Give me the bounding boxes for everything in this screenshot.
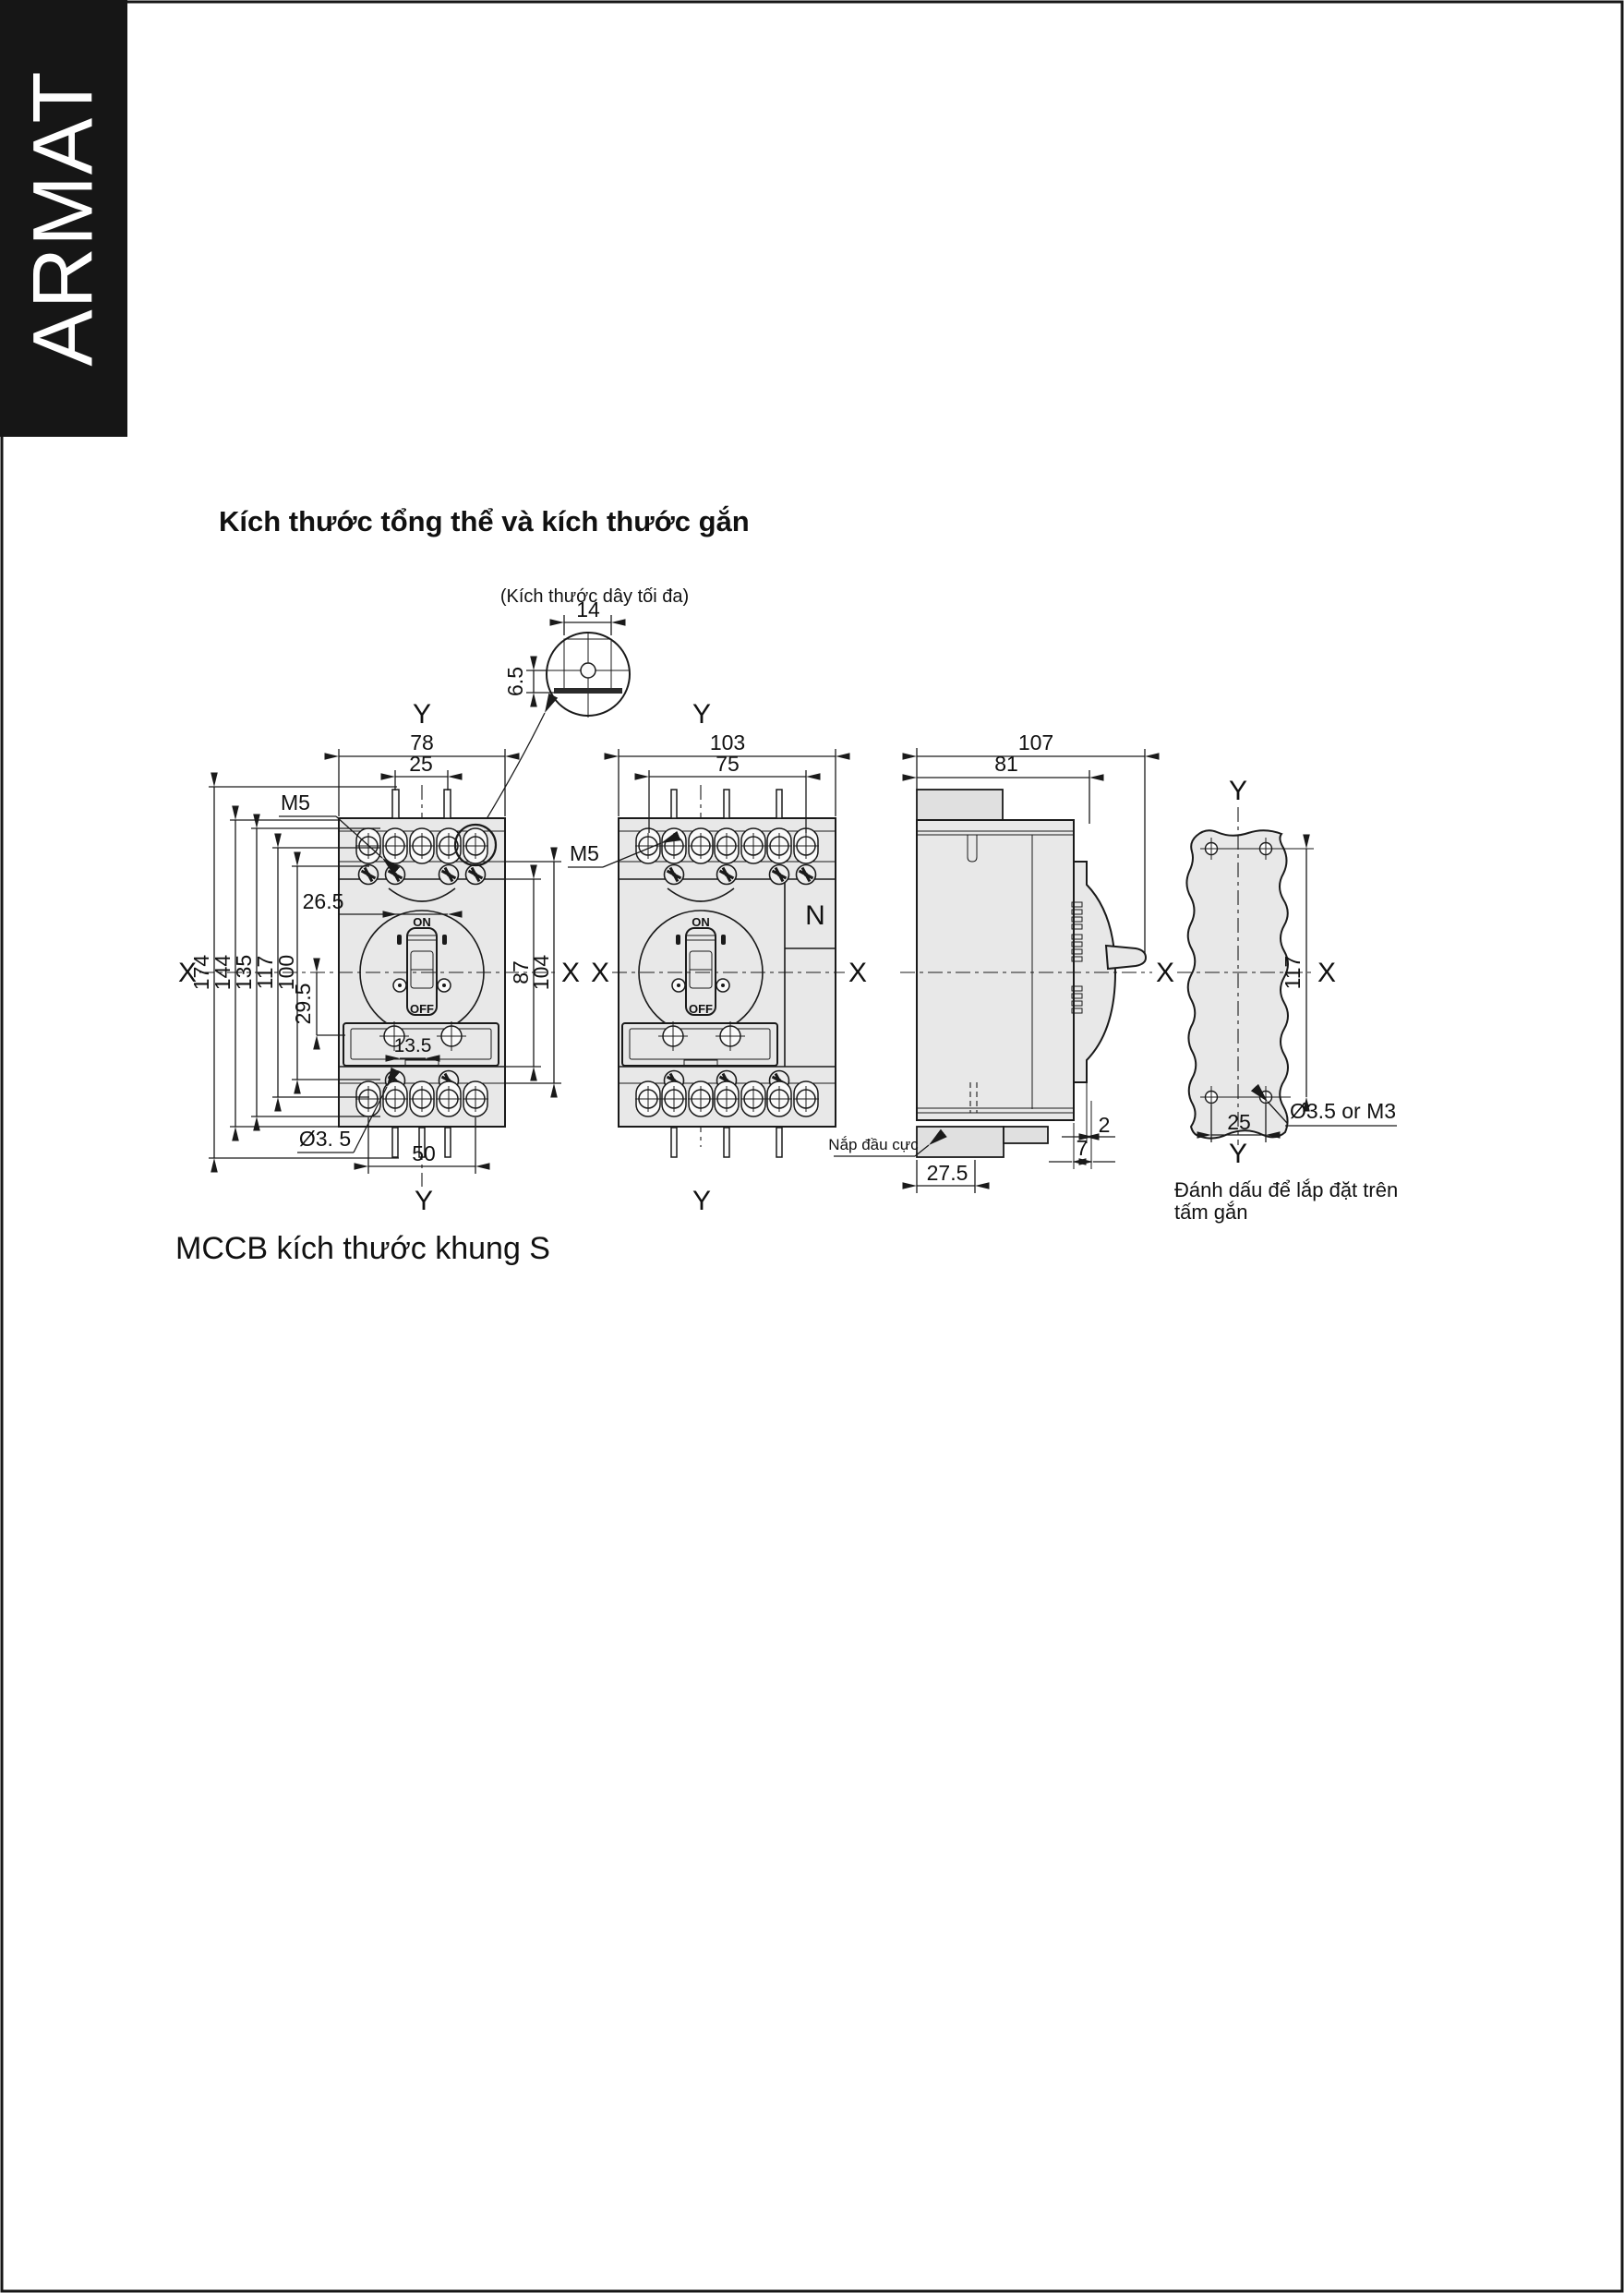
- dim-label-27-5: 27.5: [927, 1161, 968, 1185]
- axis-label-x: X: [1317, 958, 1336, 988]
- page-border: [2, 2, 1622, 2291]
- toggle-handle-side: [1106, 946, 1146, 969]
- plate-caption-line1: Đánh dấu để lắp đặt trên: [1174, 1178, 1398, 1201]
- figure-caption: MCCB kích thước khung S: [175, 1231, 550, 1266]
- dim-label-117-plate: 117: [1281, 956, 1305, 990]
- brand-banner: ARMAT: [0, 0, 127, 437]
- axis-label-y: Y: [692, 1186, 711, 1216]
- mounting-plate-view: Y Y X X 117 25 Ø3.5 or M3 Đánh dấu để lắ…: [1156, 776, 1398, 1224]
- axis-label-x: X: [848, 958, 867, 988]
- dim-label-25-plate: 25: [1227, 1110, 1251, 1134]
- dim-label-107: 107: [1018, 730, 1053, 754]
- thread-label-m5: M5: [281, 790, 310, 815]
- dim-label-81: 81: [994, 752, 1018, 776]
- dim-label-50: 50: [412, 1141, 436, 1165]
- dim-label-7: 7: [1077, 1136, 1089, 1160]
- axis-label-x: X: [591, 958, 609, 988]
- front-view-3pole: Y Y: [178, 699, 580, 1216]
- wire-clamp: [554, 688, 622, 694]
- terminal-cover-label: Nắp đầu cực: [828, 1136, 919, 1153]
- catalog-page: ARMAT: [0, 0, 1624, 2293]
- switch-on-label: ON: [413, 915, 431, 929]
- page-title: Kích thước tổng thể và kích thước gắn: [219, 504, 750, 537]
- hole-label-3-5: Ø3. 5: [299, 1127, 351, 1151]
- axis-label-y: Y: [413, 699, 431, 730]
- axis-label-x: X: [561, 958, 580, 988]
- dim-label-14: 14: [576, 597, 600, 622]
- switch-on-label: ON: [692, 915, 710, 929]
- axis-label-x: X: [1156, 958, 1174, 988]
- switch-off-label: OFF: [689, 1002, 713, 1016]
- bottom-terminal-cover: [917, 1127, 1004, 1157]
- axis-label-y: Y: [415, 1186, 433, 1216]
- front-view-4pole: Y Y N: [568, 699, 867, 1216]
- top-terminal-cover: [917, 790, 1003, 820]
- dim-label-25: 25: [409, 752, 433, 776]
- side-view: 107 81: [828, 730, 1152, 1193]
- switch-off-label: OFF: [410, 1002, 434, 1016]
- detail-leader: [479, 713, 545, 831]
- hole-label-m3: Ø3.5 or M3: [1290, 1099, 1396, 1123]
- neutral-pole-label: N: [805, 900, 825, 931]
- axis-label-x: X: [178, 958, 197, 988]
- dim-label-29-5: 29.5: [291, 984, 315, 1025]
- dim-label-6-5: 6.5: [503, 667, 527, 696]
- dim-label-2: 2: [1099, 1113, 1111, 1137]
- dim-label-75: 75: [716, 752, 740, 776]
- technical-drawing: Kích thước tổng thể và kích thước gắn MC…: [0, 0, 1624, 2293]
- wire-detail-balloon: (Kích thước dây tối đa) 14 6.5: [479, 586, 689, 831]
- bottom-cover-step: [1004, 1127, 1048, 1143]
- dim-label-26-5: 26.5: [303, 889, 344, 913]
- axis-label-y: Y: [692, 699, 711, 730]
- axis-label-y: Y: [1229, 776, 1247, 806]
- plate-caption-line2: tấm gắn: [1174, 1201, 1248, 1224]
- brand-logo-text: ARMAT: [16, 70, 113, 366]
- mounting-plate: [1186, 830, 1288, 1138]
- dim-label-13-5: 13.5: [394, 1035, 432, 1056]
- breaker-side-body: [917, 820, 1074, 1120]
- thread-label-m5: M5: [570, 841, 599, 865]
